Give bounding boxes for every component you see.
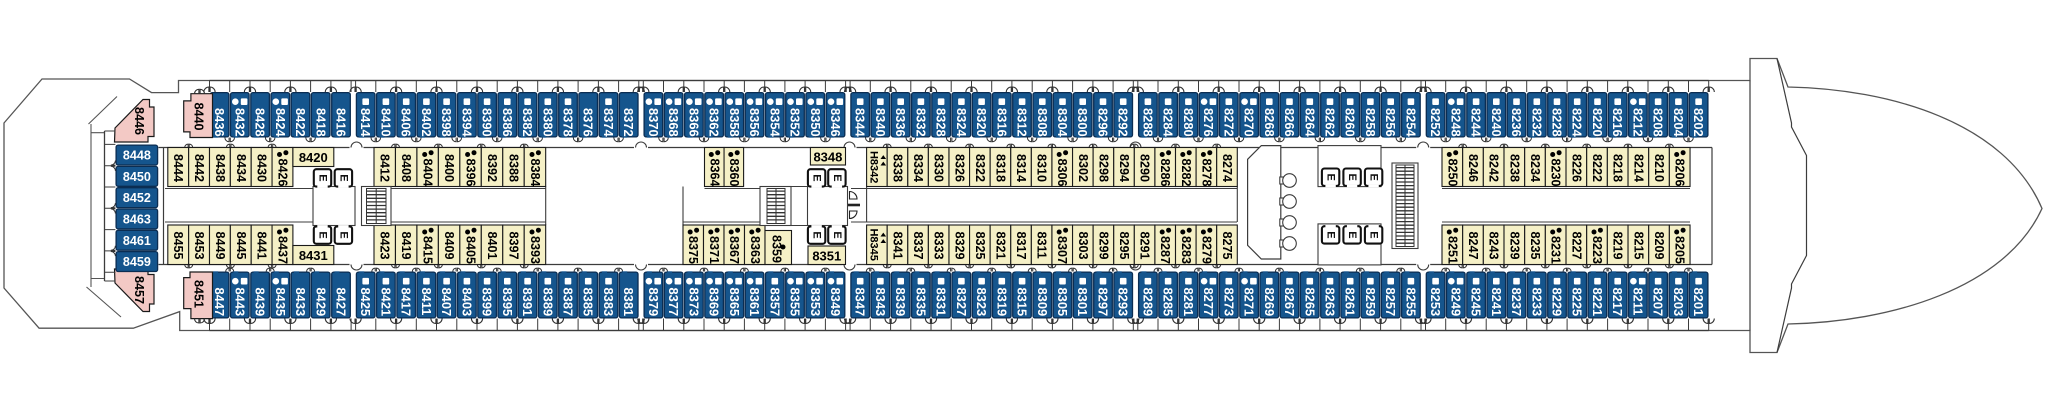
svg-text:E: E — [1346, 174, 1358, 181]
svg-text:8389: 8389 — [540, 288, 555, 317]
svg-text:8315: 8315 — [1015, 288, 1030, 317]
svg-text:8343: 8343 — [873, 288, 888, 317]
svg-text:8422: 8422 — [293, 108, 308, 137]
svg-text:8263: 8263 — [1323, 288, 1338, 317]
svg-text:8358: 8358 — [727, 108, 742, 137]
svg-text:8370: 8370 — [646, 108, 661, 137]
svg-text:8241: 8241 — [1489, 288, 1504, 317]
svg-text:8312: 8312 — [1015, 108, 1030, 137]
svg-text:8428: 8428 — [253, 108, 268, 137]
svg-text:8269: 8269 — [1262, 288, 1277, 317]
svg-text:8425: 8425 — [358, 288, 373, 317]
svg-text:8262: 8262 — [1323, 108, 1338, 137]
svg-text:8272: 8272 — [1221, 108, 1236, 137]
svg-text:8334: 8334 — [911, 154, 925, 182]
svg-text:8431: 8431 — [299, 248, 328, 263]
svg-text:8256: 8256 — [1383, 108, 1398, 137]
svg-text:8298: 8298 — [1096, 154, 1110, 182]
svg-text:8333: 8333 — [932, 232, 946, 260]
svg-text:8355: 8355 — [788, 288, 803, 317]
svg-text:8299: 8299 — [1096, 232, 1110, 260]
svg-text:8218: 8218 — [1611, 154, 1625, 182]
svg-text:8377: 8377 — [666, 288, 681, 317]
svg-text:8415: 8415 — [421, 236, 435, 264]
svg-text:8346: 8346 — [828, 108, 843, 137]
svg-text:8222: 8222 — [1590, 154, 1604, 182]
svg-text:8211: 8211 — [1630, 288, 1645, 316]
svg-text:E: E — [317, 231, 329, 238]
svg-text:8304: 8304 — [1055, 108, 1070, 138]
svg-text:8318: 8318 — [994, 154, 1008, 182]
svg-text:8252: 8252 — [1428, 108, 1443, 137]
svg-text:8393: 8393 — [528, 236, 542, 264]
svg-text:8225: 8225 — [1570, 288, 1585, 317]
svg-text:8282: 8282 — [1179, 159, 1193, 187]
svg-text:8360: 8360 — [727, 159, 741, 187]
svg-text:8437: 8437 — [276, 236, 290, 264]
svg-text:8335: 8335 — [913, 288, 928, 317]
svg-text:8324: 8324 — [954, 108, 969, 138]
svg-text:8202: 8202 — [1691, 108, 1706, 137]
svg-text:8307: 8307 — [1055, 236, 1069, 264]
svg-text:8356: 8356 — [747, 108, 762, 137]
svg-text:8359: 8359 — [770, 235, 784, 263]
svg-text:8302: 8302 — [1076, 154, 1090, 182]
svg-text:8430: 8430 — [255, 154, 269, 182]
svg-text:8240: 8240 — [1489, 108, 1504, 137]
svg-text:8362: 8362 — [707, 108, 722, 137]
svg-text:8447: 8447 — [212, 288, 227, 317]
svg-text:8320: 8320 — [974, 108, 989, 137]
svg-text:8424: 8424 — [273, 108, 288, 138]
svg-text:8369: 8369 — [707, 288, 722, 317]
svg-text:8351: 8351 — [812, 248, 841, 263]
svg-text:8406: 8406 — [399, 108, 414, 137]
svg-text:8357: 8357 — [767, 288, 782, 317]
svg-text:8210: 8210 — [1652, 154, 1666, 182]
svg-text:8386: 8386 — [500, 108, 515, 137]
svg-text:8206: 8206 — [1673, 159, 1687, 187]
svg-text:8294: 8294 — [1117, 154, 1131, 182]
svg-text:8289: 8289 — [1140, 288, 1155, 317]
svg-text:8438: 8438 — [213, 154, 227, 182]
svg-text:8270: 8270 — [1242, 108, 1257, 137]
svg-text:E: E — [831, 231, 843, 238]
svg-text:8300: 8300 — [1075, 108, 1090, 137]
svg-text:8273: 8273 — [1221, 288, 1236, 317]
svg-text:E: E — [811, 174, 823, 181]
svg-text:8227: 8227 — [1569, 232, 1583, 260]
svg-text:8284: 8284 — [1161, 108, 1176, 138]
svg-text:E: E — [811, 231, 823, 238]
svg-text:8444: 8444 — [171, 154, 185, 182]
svg-text:8361: 8361 — [747, 288, 762, 317]
svg-text:8301: 8301 — [1075, 288, 1090, 317]
svg-text:8329: 8329 — [952, 232, 966, 260]
svg-text:8451: 8451 — [192, 280, 206, 308]
svg-text:8228: 8228 — [1550, 108, 1565, 137]
svg-text:8403: 8403 — [459, 288, 474, 317]
svg-text:8332: 8332 — [913, 108, 928, 137]
svg-text:8311: 8311 — [1035, 232, 1049, 259]
svg-text:8441: 8441 — [255, 232, 269, 260]
svg-text:8230: 8230 — [1549, 159, 1563, 187]
svg-text:8242: 8242 — [1487, 154, 1501, 182]
svg-text:8248: 8248 — [1448, 108, 1463, 137]
svg-text:8404: 8404 — [421, 159, 435, 187]
svg-text:8439: 8439 — [253, 288, 268, 317]
svg-text:8382: 8382 — [520, 108, 535, 137]
svg-text:8253: 8253 — [1428, 288, 1443, 317]
svg-text:8276: 8276 — [1201, 108, 1216, 137]
svg-text:8322: 8322 — [973, 154, 987, 182]
svg-text:8341: 8341 — [891, 232, 905, 260]
svg-text:8238: 8238 — [1507, 154, 1521, 182]
svg-text:8442: 8442 — [192, 154, 206, 182]
svg-text:8268: 8268 — [1262, 108, 1277, 137]
svg-text:8419: 8419 — [399, 232, 413, 260]
svg-text:8267: 8267 — [1282, 288, 1297, 317]
svg-text:8375: 8375 — [686, 236, 700, 264]
svg-text:8231: 8231 — [1549, 236, 1563, 264]
svg-text:E: E — [1325, 231, 1337, 238]
svg-text:8417: 8417 — [399, 288, 414, 317]
svg-text:8409: 8409 — [442, 232, 456, 260]
svg-text:8344: 8344 — [853, 108, 868, 138]
svg-text:8463: 8463 — [123, 213, 151, 227]
svg-text:8402: 8402 — [419, 108, 434, 137]
svg-text:8219: 8219 — [1611, 232, 1625, 260]
svg-text:8399: 8399 — [480, 288, 495, 317]
svg-text:8321: 8321 — [994, 232, 1008, 260]
svg-text:E: E — [1346, 231, 1358, 238]
svg-text:E: E — [1325, 174, 1337, 181]
svg-text:8416: 8416 — [334, 108, 349, 137]
svg-text:8423: 8423 — [378, 232, 392, 260]
svg-text:8405: 8405 — [464, 236, 478, 264]
svg-text:8328: 8328 — [934, 108, 949, 137]
svg-text:8455: 8455 — [171, 232, 185, 260]
svg-text:8281: 8281 — [1181, 288, 1196, 317]
svg-text:8414: 8414 — [358, 108, 373, 138]
svg-text:8216: 8216 — [1610, 108, 1625, 137]
svg-text:8443: 8443 — [232, 288, 247, 317]
svg-text:8277: 8277 — [1201, 288, 1216, 317]
svg-text:8459: 8459 — [123, 255, 151, 269]
svg-text:8208: 8208 — [1651, 108, 1666, 137]
svg-text:8331: 8331 — [934, 288, 949, 317]
svg-text:H8342: H8342 — [868, 151, 880, 183]
svg-text:8448: 8448 — [123, 149, 151, 163]
svg-text:8317: 8317 — [1014, 232, 1028, 260]
svg-text:8229: 8229 — [1550, 288, 1565, 317]
svg-text:8411: 8411 — [419, 288, 434, 316]
svg-text:8453: 8453 — [192, 232, 206, 260]
svg-text:8400: 8400 — [442, 154, 456, 182]
svg-text:8350: 8350 — [808, 108, 823, 137]
svg-text:H8345: H8345 — [868, 229, 880, 261]
svg-text:8436: 8436 — [212, 108, 227, 137]
svg-text:8407: 8407 — [439, 288, 454, 317]
svg-text:8274: 8274 — [1220, 154, 1234, 182]
svg-text:8295: 8295 — [1117, 232, 1131, 260]
svg-text:8421: 8421 — [378, 288, 393, 317]
svg-text:8309: 8309 — [1035, 288, 1050, 317]
svg-text:8365: 8365 — [727, 288, 742, 317]
svg-text:E: E — [337, 231, 349, 238]
svg-text:8427: 8427 — [334, 288, 349, 317]
svg-text:8418: 8418 — [313, 108, 328, 137]
svg-text:8440: 8440 — [192, 103, 206, 131]
svg-text:8452: 8452 — [123, 191, 151, 205]
svg-text:8257: 8257 — [1383, 288, 1398, 317]
svg-text:8354: 8354 — [767, 108, 782, 138]
svg-text:8385: 8385 — [581, 288, 596, 317]
svg-text:8353: 8353 — [808, 288, 823, 317]
svg-text:8379: 8379 — [646, 288, 661, 317]
svg-text:8251: 8251 — [1445, 236, 1459, 264]
svg-text:8429: 8429 — [313, 288, 328, 317]
svg-text:8203: 8203 — [1671, 288, 1686, 317]
svg-text:8376: 8376 — [581, 108, 596, 137]
svg-text:8201: 8201 — [1691, 288, 1706, 317]
svg-text:8339: 8339 — [893, 288, 908, 317]
svg-text:8243: 8243 — [1487, 232, 1501, 260]
svg-text:E: E — [1368, 231, 1380, 238]
svg-text:8337: 8337 — [911, 232, 925, 260]
svg-text:8264: 8264 — [1302, 108, 1317, 138]
svg-text:8303: 8303 — [1076, 232, 1090, 260]
svg-text:8374: 8374 — [601, 108, 616, 138]
svg-text:8384: 8384 — [528, 159, 542, 187]
svg-text:8367: 8367 — [727, 236, 741, 264]
svg-text:8234: 8234 — [1528, 154, 1542, 182]
svg-text:8326: 8326 — [952, 154, 966, 182]
svg-text:8261: 8261 — [1343, 288, 1358, 317]
svg-text:8325: 8325 — [973, 232, 987, 260]
svg-text:8224: 8224 — [1570, 108, 1585, 138]
svg-text:8258: 8258 — [1363, 108, 1378, 137]
svg-text:8259: 8259 — [1363, 288, 1378, 317]
svg-text:8233: 8233 — [1529, 288, 1544, 317]
svg-text:8244: 8244 — [1469, 108, 1484, 138]
svg-text:8336: 8336 — [893, 108, 908, 137]
svg-text:8271: 8271 — [1242, 288, 1257, 317]
svg-text:8449: 8449 — [213, 232, 227, 260]
svg-text:E: E — [317, 174, 329, 181]
svg-text:8215: 8215 — [1631, 232, 1645, 260]
svg-text:8239: 8239 — [1507, 232, 1521, 260]
svg-text:8363: 8363 — [748, 236, 762, 264]
svg-text:8250: 8250 — [1445, 159, 1459, 187]
svg-text:8380: 8380 — [540, 108, 555, 137]
svg-text:8207: 8207 — [1651, 288, 1666, 317]
svg-text:8316: 8316 — [994, 108, 1009, 137]
svg-text:8396: 8396 — [464, 159, 478, 187]
svg-text:8450: 8450 — [123, 170, 151, 184]
svg-text:8366: 8366 — [686, 108, 701, 137]
svg-text:E: E — [337, 174, 349, 181]
svg-text:8260: 8260 — [1343, 108, 1358, 137]
svg-text:8265: 8265 — [1302, 288, 1317, 317]
svg-text:8349: 8349 — [828, 288, 843, 317]
svg-text:8388: 8388 — [507, 154, 521, 182]
svg-text:8278: 8278 — [1199, 159, 1213, 187]
svg-text:8226: 8226 — [1569, 154, 1583, 182]
svg-text:8390: 8390 — [480, 108, 495, 137]
svg-text:8212: 8212 — [1630, 108, 1645, 137]
svg-text:8205: 8205 — [1673, 236, 1687, 264]
svg-text:8435: 8435 — [273, 288, 288, 317]
svg-text:8291: 8291 — [1138, 232, 1152, 260]
svg-text:8338: 8338 — [891, 154, 905, 182]
svg-text:8387: 8387 — [561, 288, 576, 317]
svg-text:8292: 8292 — [1116, 108, 1131, 137]
svg-text:8306: 8306 — [1055, 159, 1069, 187]
svg-text:8221: 8221 — [1590, 288, 1605, 317]
svg-text:8323: 8323 — [974, 288, 989, 317]
svg-text:8319: 8319 — [994, 288, 1009, 317]
svg-text:8296: 8296 — [1096, 108, 1111, 137]
svg-text:8280: 8280 — [1181, 108, 1196, 137]
svg-text:8347: 8347 — [853, 288, 868, 317]
svg-text:8446: 8446 — [132, 107, 146, 135]
svg-text:8204: 8204 — [1671, 108, 1686, 138]
svg-text:8371: 8371 — [707, 236, 721, 264]
svg-text:8434: 8434 — [234, 154, 248, 182]
svg-text:8249: 8249 — [1448, 288, 1463, 317]
svg-text:8383: 8383 — [601, 288, 616, 317]
svg-text:8235: 8235 — [1528, 232, 1542, 260]
svg-text:8426: 8426 — [276, 159, 290, 187]
svg-text:8327: 8327 — [954, 288, 969, 317]
svg-text:8236: 8236 — [1509, 108, 1524, 137]
svg-text:8364: 8364 — [707, 159, 721, 187]
svg-text:8254: 8254 — [1403, 108, 1418, 138]
svg-text:8432: 8432 — [232, 108, 247, 137]
svg-text:8287: 8287 — [1158, 236, 1172, 264]
svg-text:8457: 8457 — [132, 276, 146, 304]
svg-text:8293: 8293 — [1116, 288, 1131, 317]
svg-text:8412: 8412 — [378, 154, 392, 182]
svg-text:E: E — [1368, 174, 1380, 181]
svg-text:8237: 8237 — [1509, 288, 1524, 317]
svg-text:8392: 8392 — [485, 154, 499, 182]
svg-text:8330: 8330 — [932, 154, 946, 182]
svg-text:8410: 8410 — [378, 108, 393, 137]
svg-text:8275: 8275 — [1220, 232, 1234, 260]
svg-text:8217: 8217 — [1610, 288, 1625, 317]
svg-text:8395: 8395 — [500, 288, 515, 317]
svg-text:8373: 8373 — [686, 288, 701, 317]
svg-text:8394: 8394 — [459, 108, 474, 138]
svg-text:8420: 8420 — [299, 150, 328, 165]
svg-text:8223: 8223 — [1590, 236, 1604, 264]
svg-text:8381: 8381 — [621, 288, 636, 317]
svg-text:8372: 8372 — [621, 108, 636, 137]
svg-text:8245: 8245 — [1469, 288, 1484, 317]
svg-text:8279: 8279 — [1199, 236, 1213, 264]
svg-text:8214: 8214 — [1631, 154, 1645, 182]
svg-text:8340: 8340 — [873, 108, 888, 137]
svg-text:8368: 8368 — [666, 108, 681, 137]
svg-text:8408: 8408 — [399, 154, 413, 182]
svg-text:8285: 8285 — [1161, 288, 1176, 317]
svg-text:8305: 8305 — [1055, 288, 1070, 317]
svg-text:8255: 8255 — [1403, 288, 1418, 317]
svg-text:8397: 8397 — [507, 232, 521, 260]
svg-text:8232: 8232 — [1529, 108, 1544, 137]
svg-text:8247: 8247 — [1466, 232, 1480, 260]
svg-text:8352: 8352 — [788, 108, 803, 137]
svg-text:8401: 8401 — [485, 232, 499, 260]
svg-text:8348: 8348 — [813, 149, 842, 164]
svg-text:E: E — [831, 174, 843, 181]
svg-text:8308: 8308 — [1035, 108, 1050, 137]
svg-text:8288: 8288 — [1140, 108, 1155, 137]
svg-text:8297: 8297 — [1096, 288, 1111, 317]
svg-text:8461: 8461 — [123, 234, 151, 248]
svg-text:8209: 8209 — [1652, 232, 1666, 260]
svg-text:8266: 8266 — [1282, 108, 1297, 137]
svg-text:8391: 8391 — [520, 288, 535, 317]
svg-text:8445: 8445 — [234, 232, 248, 260]
svg-text:8290: 8290 — [1138, 154, 1152, 182]
svg-text:8378: 8378 — [561, 108, 576, 137]
svg-text:8398: 8398 — [439, 108, 454, 137]
svg-text:8283: 8283 — [1179, 236, 1193, 264]
svg-text:8433: 8433 — [293, 288, 308, 317]
svg-text:8310: 8310 — [1035, 154, 1049, 182]
svg-text:8220: 8220 — [1590, 108, 1605, 137]
svg-text:8246: 8246 — [1466, 154, 1480, 182]
svg-text:8314: 8314 — [1014, 154, 1028, 182]
svg-text:8286: 8286 — [1158, 159, 1172, 187]
